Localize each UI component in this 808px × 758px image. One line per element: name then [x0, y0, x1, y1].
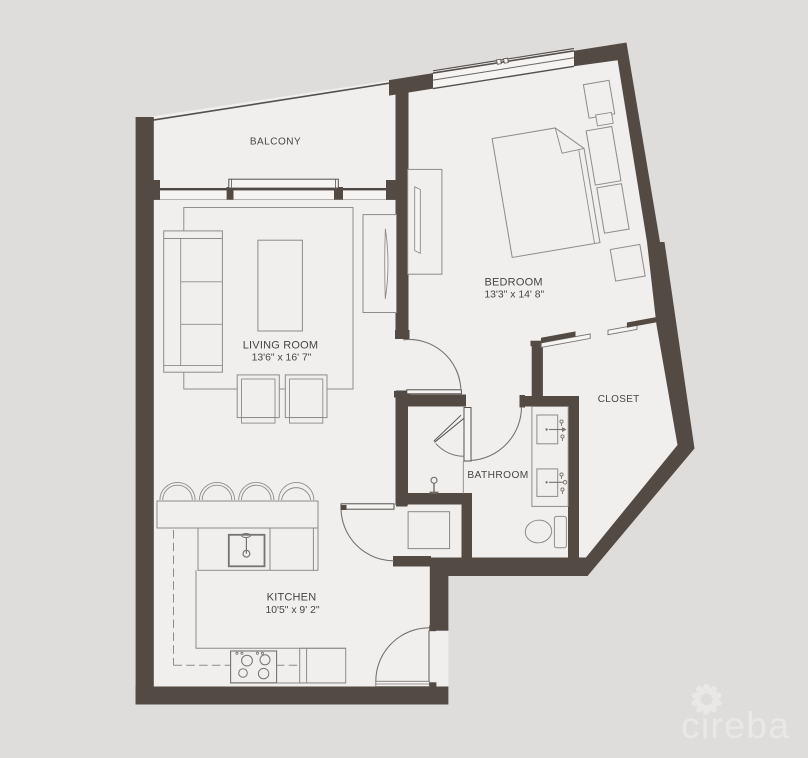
svg-text:10'5" x 9' 2": 10'5" x 9' 2"	[265, 605, 319, 616]
svg-text:BEDROOM: BEDROOM	[484, 277, 542, 289]
svg-text:LIVING ROOM: LIVING ROOM	[243, 340, 319, 352]
svg-text:13'6" x 16' 7": 13'6" x 16' 7"	[252, 353, 312, 364]
svg-text:CLOSET: CLOSET	[598, 394, 640, 405]
svg-text:KITCHEN: KITCHEN	[267, 592, 317, 604]
svg-text:cireba: cireba	[681, 704, 790, 746]
svg-text:BALCONY: BALCONY	[250, 137, 301, 148]
svg-text:13'3" x 14' 8": 13'3" x 14' 8"	[484, 290, 544, 301]
svg-text:BATHROOM: BATHROOM	[467, 470, 528, 481]
